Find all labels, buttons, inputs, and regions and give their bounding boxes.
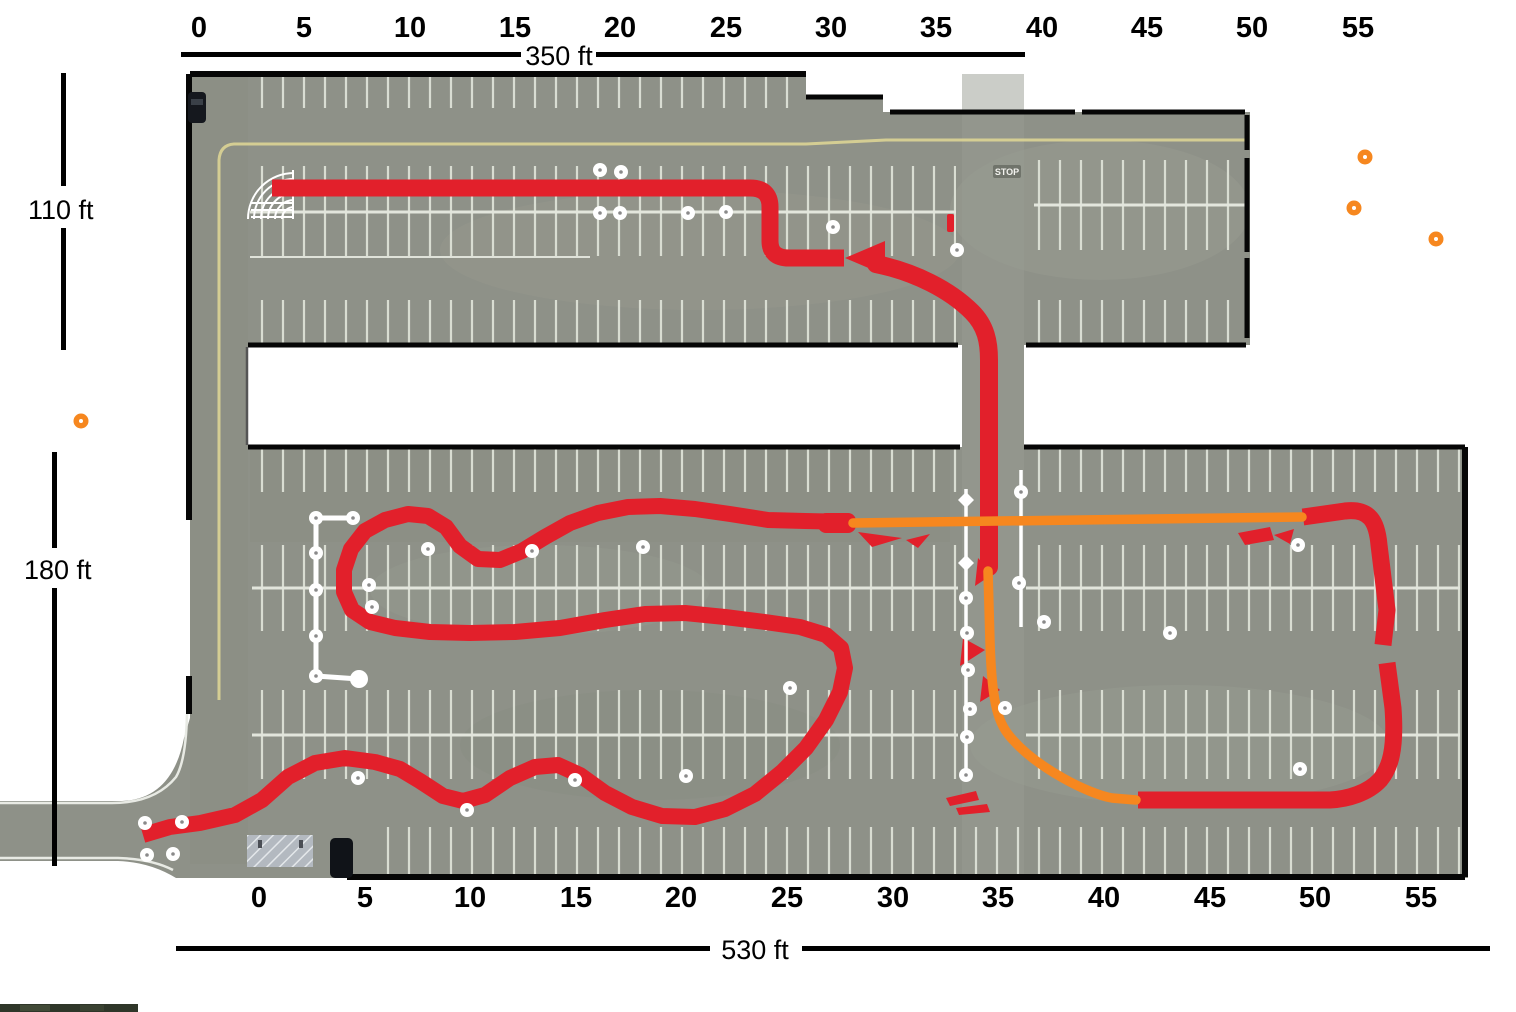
bottom-scale-bar <box>176 946 710 951</box>
bottom-tick-label: 0 <box>251 884 267 913</box>
top-tick-label: 50 <box>1236 14 1268 43</box>
bottom-tick-label: 25 <box>771 884 803 913</box>
top-tick-label: 25 <box>710 14 742 43</box>
aerial-course-map: STOP <box>0 0 1516 1012</box>
bottom-tick-label: 20 <box>665 884 697 913</box>
hatched-zone <box>247 835 313 867</box>
bottom-tick-label: 15 <box>560 884 592 913</box>
left-upper-scale-bar <box>61 73 66 186</box>
course-map-page: STOP <box>0 0 1516 1012</box>
bottom-tick-label: 50 <box>1299 884 1331 913</box>
bottom-tick-label: 10 <box>454 884 486 913</box>
parked-car <box>188 92 206 123</box>
bottom-tick-label: 55 <box>1405 884 1437 913</box>
top-scale-bar <box>181 52 521 57</box>
left-lower-scale-bar <box>52 452 57 548</box>
bottom-tick-label: 30 <box>877 884 909 913</box>
top-tick-label: 55 <box>1342 14 1374 43</box>
bottom-scale-bar <box>802 946 1490 951</box>
bottom-tick-label: 5 <box>357 884 373 913</box>
bottom-tick-label: 35 <box>982 884 1014 913</box>
top-tick-label: 20 <box>604 14 636 43</box>
bottom-tick-label: 45 <box>1194 884 1226 913</box>
top-scale-bar <box>596 52 1025 57</box>
left-lower-scale-bar <box>52 588 57 866</box>
top-tick-label: 35 <box>920 14 952 43</box>
stop-pavement-text: STOP <box>995 167 1019 177</box>
top-tick-label: 40 <box>1026 14 1058 43</box>
parked-car <box>330 838 353 878</box>
top-tick-label: 10 <box>394 14 426 43</box>
bottom-tick-label: 40 <box>1088 884 1120 913</box>
left-upper-scale-bar <box>61 228 66 350</box>
top-tick-label: 15 <box>499 14 531 43</box>
bottom-scale-length-label: 530 ft <box>712 937 798 964</box>
orange-cross-line <box>853 517 1302 523</box>
top-tick-label: 45 <box>1131 14 1163 43</box>
top-tick-label: 0 <box>191 14 207 43</box>
left-upper-length-label: 110 ft <box>28 197 94 224</box>
top-tick-label: 5 <box>296 14 312 43</box>
top-scale-length-label: 350 ft <box>524 43 594 70</box>
left-lower-length-label: 180 ft <box>24 557 92 584</box>
top-tick-label: 30 <box>815 14 847 43</box>
